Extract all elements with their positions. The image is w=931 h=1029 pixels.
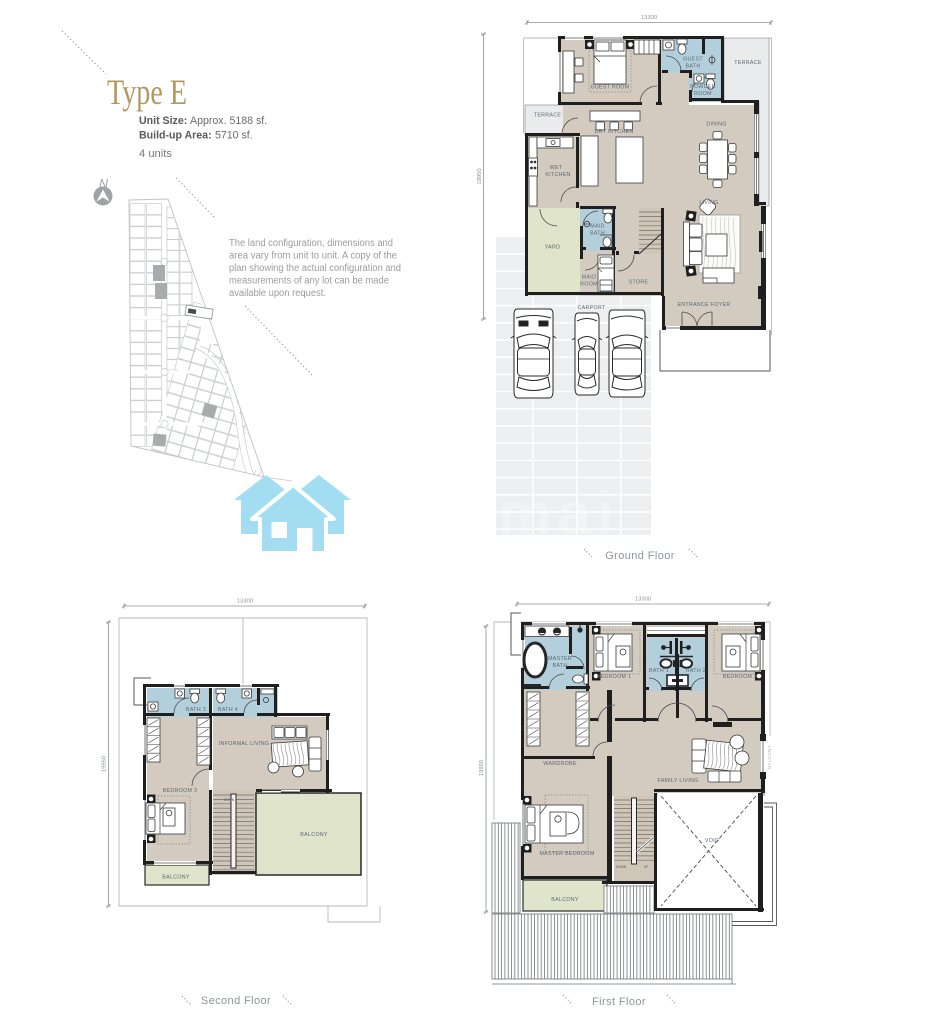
svg-text:Type E: Type E — [107, 72, 187, 112]
svg-text:13300: 13300 — [641, 15, 657, 21]
svg-text:BATH: BATH — [553, 663, 568, 669]
svg-text:ROOM: ROOM — [694, 91, 712, 97]
svg-text:available upon request.: available upon request. — [229, 288, 326, 299]
svg-text:BATH: BATH — [590, 231, 605, 237]
svg-text:WET: WET — [550, 165, 563, 171]
svg-text:BATH: BATH — [686, 64, 701, 70]
svg-text:BEDROOM 2: BEDROOM 2 — [723, 674, 758, 680]
svg-text:BEDROOM 3: BEDROOM 3 — [163, 788, 198, 794]
svg-text:BATH 1: BATH 1 — [649, 668, 669, 674]
svg-text:13300: 13300 — [635, 597, 651, 603]
svg-text:The land configuration, dimens: The land configuration, dimensions and — [229, 238, 393, 249]
svg-text:TERRACE: TERRACE — [734, 60, 762, 66]
svg-text:MAID: MAID — [582, 275, 596, 281]
svg-text:Second Floor: Second Floor — [201, 995, 271, 1007]
svg-text:KITCHEN: KITCHEN — [545, 172, 570, 178]
svg-text:INFORMAL LIVING: INFORMAL LIVING — [219, 741, 270, 747]
svg-text:DOWN: DOWN — [224, 798, 235, 802]
svg-text:DRY KITCHEN: DRY KITCHEN — [594, 129, 633, 135]
svg-text:GUEST: GUEST — [683, 57, 703, 63]
svg-text:BALCONY: BALCONY — [551, 897, 579, 903]
svg-text:19950: 19950 — [477, 168, 483, 184]
svg-text:FAMILY LIVING: FAMILY LIVING — [657, 778, 698, 784]
svg-text:mai: mai — [498, 480, 619, 547]
svg-text:BALCONY: BALCONY — [162, 875, 190, 881]
svg-text:UP: UP — [644, 865, 648, 869]
svg-text:DINING: DINING — [706, 122, 726, 128]
svg-text:4 units: 4 units — [139, 148, 172, 160]
svg-text:Unit Size:: Unit Size: — [139, 115, 187, 127]
svg-text:WARDROBE: WARDROBE — [543, 761, 577, 767]
svg-text:Approx. 5188 sf.: Approx. 5188 sf. — [190, 115, 267, 127]
svg-text:YARD: YARD — [545, 245, 561, 251]
svg-text:First Floor: First Floor — [592, 996, 646, 1008]
svg-text:BALCONY: BALCONY — [300, 832, 328, 838]
svg-text:POWDER: POWDER — [690, 84, 716, 90]
svg-text:BATH 4: BATH 4 — [218, 707, 238, 713]
svg-text:MASTER: MASTER — [548, 656, 572, 662]
svg-text:BEDROOM 1: BEDROOM 1 — [597, 674, 632, 680]
svg-text:19950: 19950 — [102, 756, 108, 772]
svg-text:GUEST ROOM: GUEST ROOM — [590, 85, 629, 91]
svg-text:MASTER BEDROOM: MASTER BEDROOM — [539, 851, 594, 857]
svg-text:ENTRANCE FOYER: ENTRANCE FOYER — [677, 302, 730, 308]
svg-text:CARPORT: CARPORT — [578, 305, 606, 311]
svg-text:STORE: STORE — [629, 280, 649, 286]
svg-text:TERRACE: TERRACE — [534, 113, 562, 119]
svg-text:19950: 19950 — [479, 760, 485, 776]
svg-text:DOWN: DOWN — [616, 865, 627, 869]
svg-text:Build-up Area:: Build-up Area: — [139, 130, 212, 142]
svg-text:5710 sf.: 5710 sf. — [215, 130, 253, 142]
svg-text:BATH 2: BATH 2 — [686, 668, 706, 674]
svg-text:VOID: VOID — [705, 838, 719, 844]
svg-text:area vary from unit to unit. A: area vary from unit to unit. A copy of t… — [229, 251, 397, 262]
svg-text:13300: 13300 — [237, 599, 253, 605]
svg-text:BATH 3: BATH 3 — [186, 707, 206, 713]
svg-text:Ground Floor: Ground Floor — [605, 550, 675, 562]
svg-text:plan showing the actual config: plan showing the actual configuration an… — [229, 263, 401, 274]
svg-text:measurements of any lot can be: measurements of any lot can be made — [229, 276, 389, 287]
svg-text:ROOM: ROOM — [580, 282, 598, 288]
svg-text:BALCONY: BALCONY — [767, 745, 772, 769]
svg-text:MAID: MAID — [590, 224, 604, 230]
svg-text:LIVING: LIVING — [699, 200, 718, 206]
